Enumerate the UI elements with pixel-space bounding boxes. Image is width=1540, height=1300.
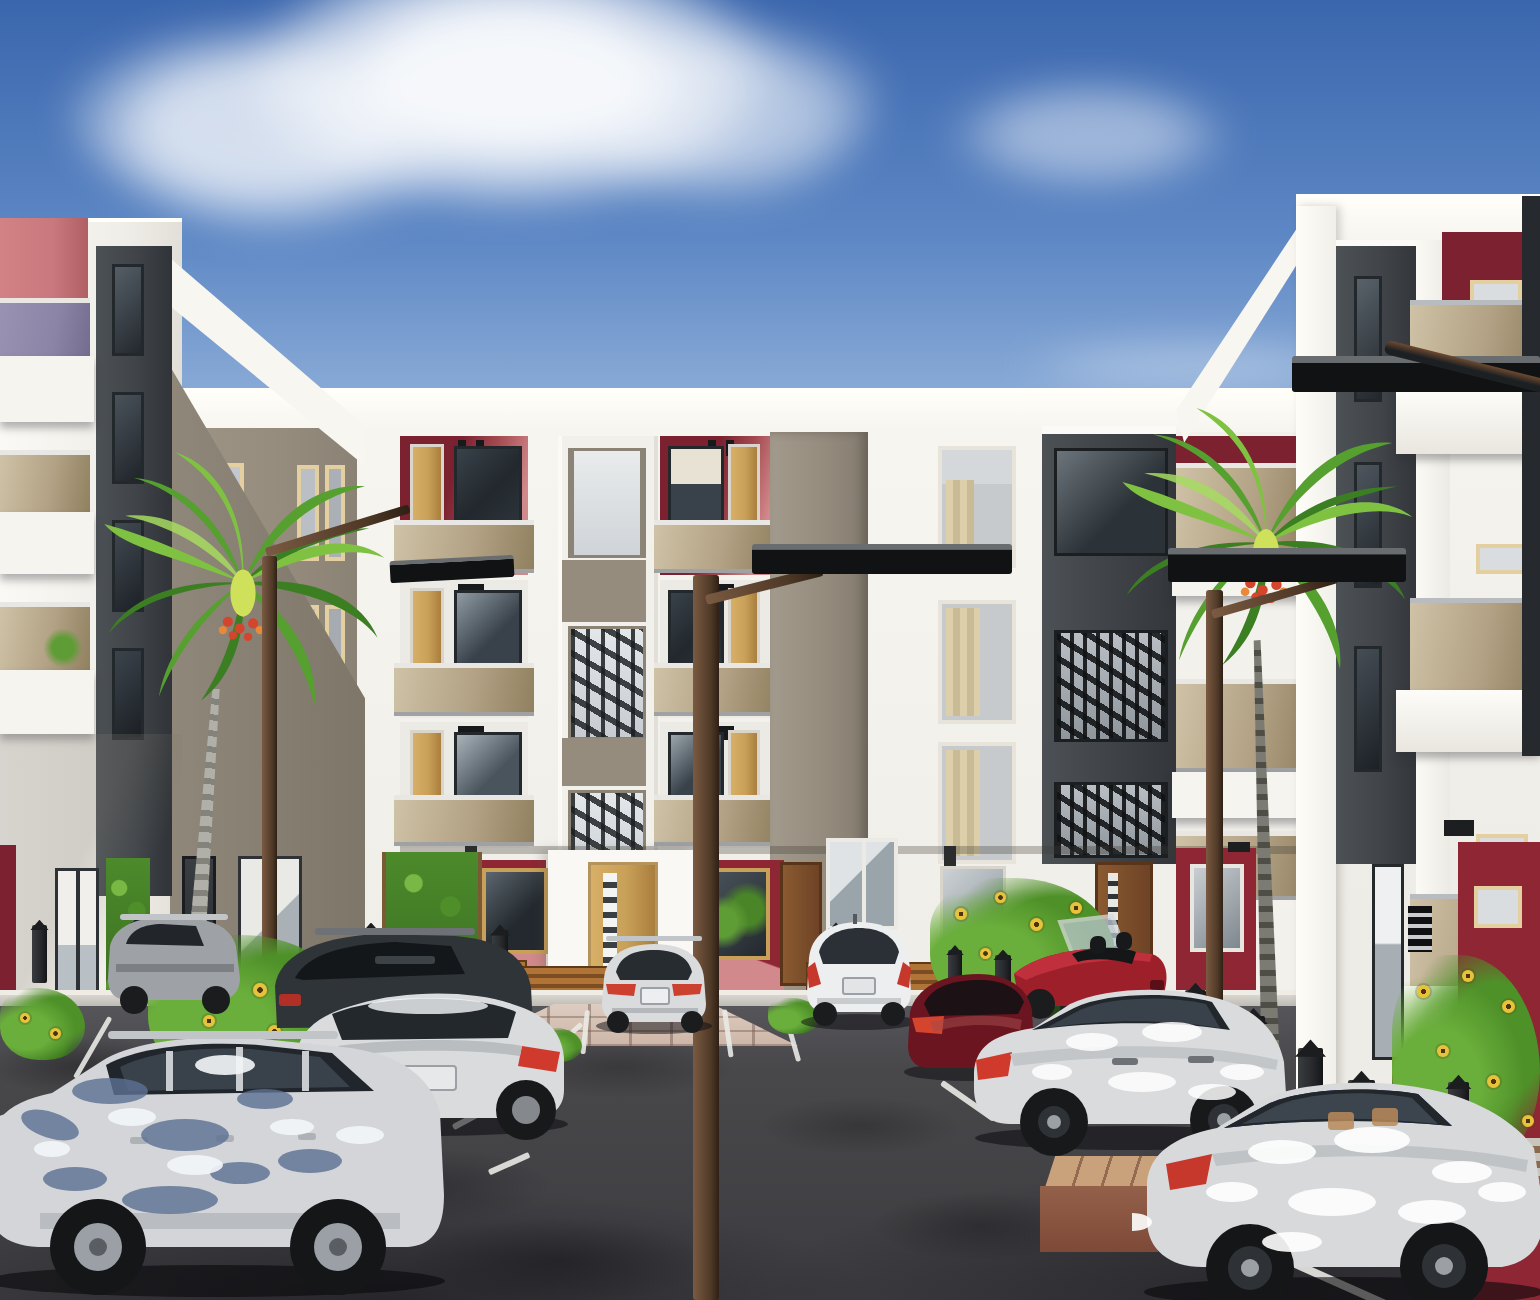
silver-suv-right: [1132, 1062, 1540, 1300]
silver-sedan: [592, 932, 716, 1034]
architectural-rendering: [0, 0, 1540, 1300]
bollard: [32, 925, 47, 983]
silver-landcruiser-suv: [0, 995, 455, 1300]
